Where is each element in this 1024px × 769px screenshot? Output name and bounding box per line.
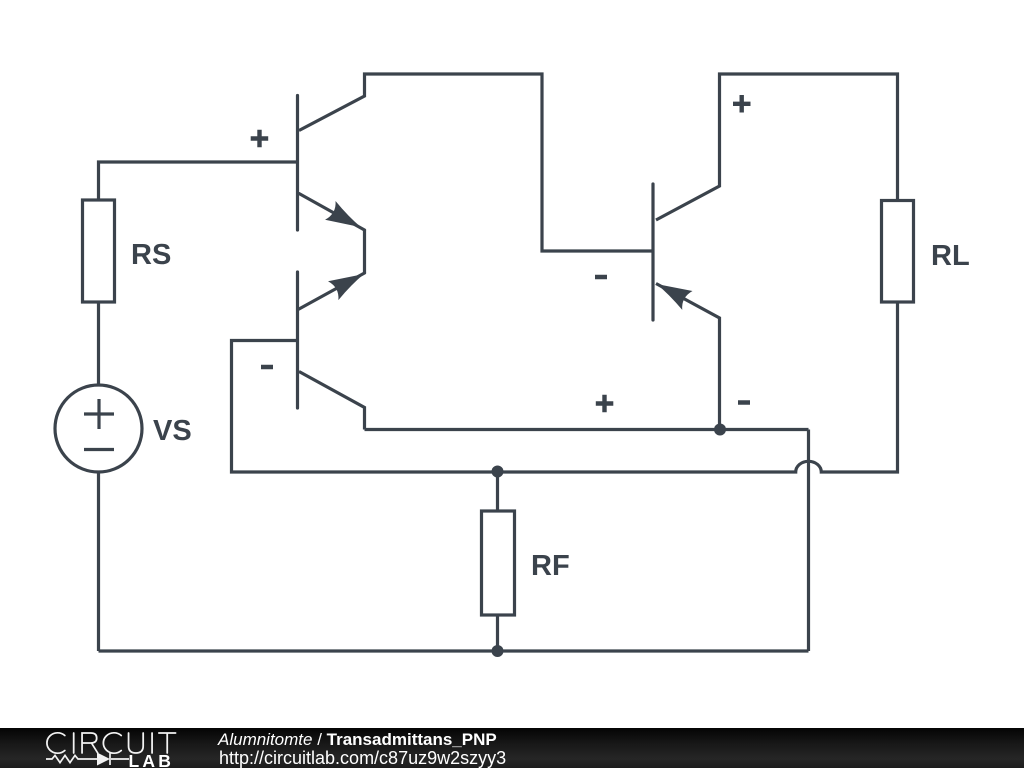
svg-text:LAB: LAB [129, 751, 175, 768]
svg-text:RL: RL [931, 240, 970, 272]
svg-text:RS: RS [131, 239, 171, 271]
svg-text:VS: VS [153, 415, 192, 447]
svg-text:RF: RF [531, 550, 570, 582]
